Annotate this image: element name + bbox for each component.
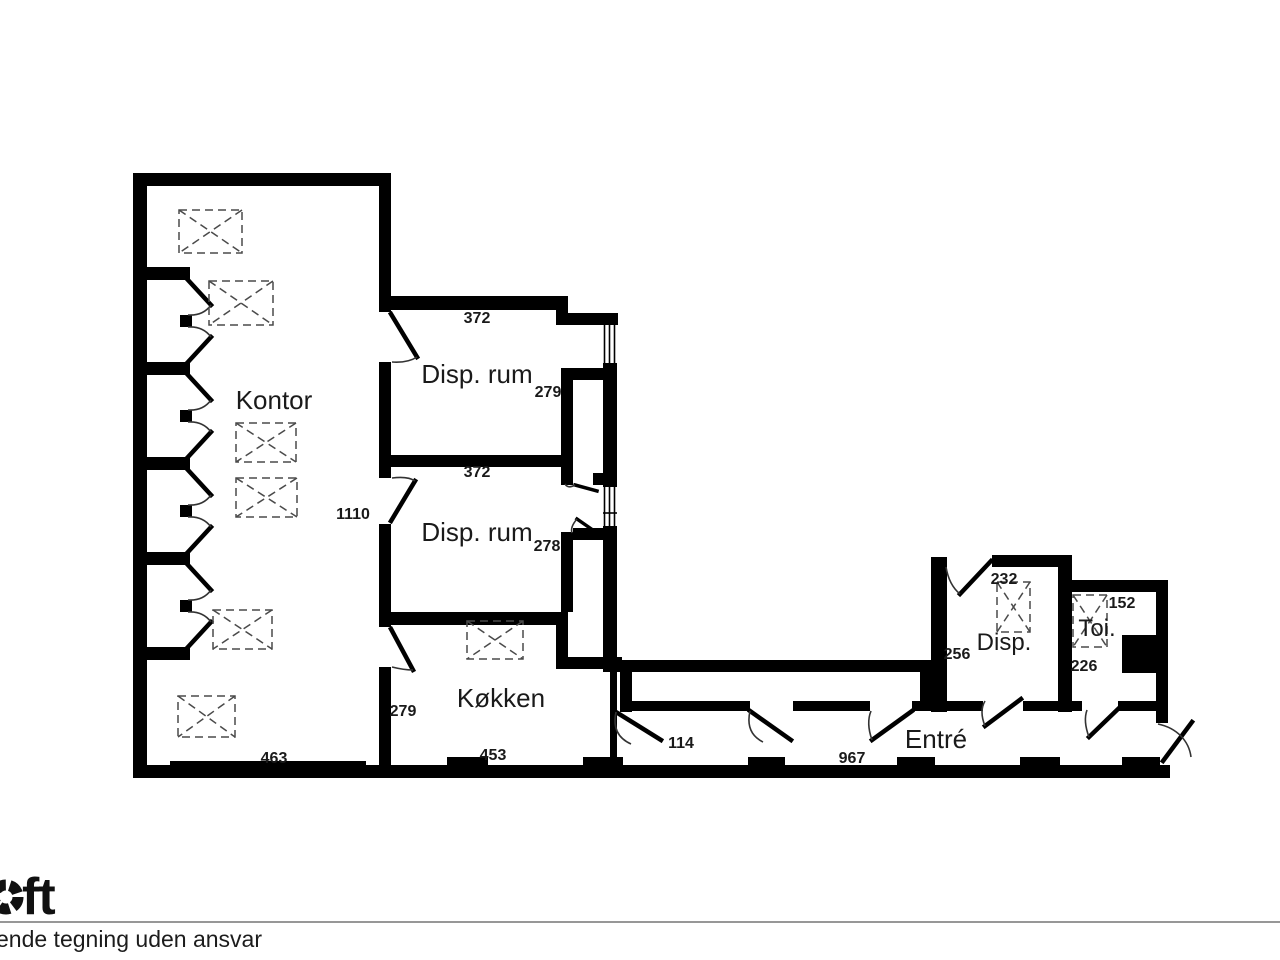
radiator-icon — [179, 210, 242, 253]
threshold-bumps — [170, 757, 1160, 766]
room-label-toi: Toi. — [1078, 615, 1115, 642]
entrance-door-icon — [1158, 722, 1192, 761]
door-icon — [391, 629, 413, 670]
dim-label-114: 114 — [668, 735, 694, 752]
floorplan-page: Kontor Disp. rum Disp. rum Køkken Entré … — [0, 0, 1280, 960]
door-icon — [615, 712, 661, 744]
logo: ft — [0, 868, 55, 926]
room-label-disp: Disp. — [977, 629, 1032, 656]
dim-label-1110: 1110 — [336, 506, 370, 523]
window-icon — [603, 487, 617, 526]
room-label-kokken: Køkken — [457, 683, 545, 713]
dim-label-232: 232 — [991, 571, 1018, 588]
window-icon — [605, 325, 615, 363]
room-label-disp-rum-2: Disp. rum — [421, 517, 532, 547]
shaft-block — [1122, 635, 1158, 673]
dim-label-278: 278 — [534, 538, 561, 555]
floorplan-canvas: Kontor Disp. rum Disp. rum Køkken Entré … — [0, 0, 1280, 960]
door-icon — [749, 711, 791, 742]
dim-label-372-top: 372 — [464, 310, 491, 327]
door-icon — [565, 484, 597, 491]
logo-aperture-icon — [0, 885, 18, 909]
dim-label-967: 967 — [839, 750, 866, 767]
door-icon — [982, 699, 1021, 726]
dim-label-279-kokken: 279 — [390, 703, 417, 720]
radiator-icon — [236, 478, 297, 517]
dim-label-463: 463 — [261, 750, 288, 767]
dim-label-453: 453 — [480, 747, 507, 764]
dim-label-152: 152 — [1109, 595, 1136, 612]
door-icon — [946, 561, 991, 594]
exterior-walls — [133, 173, 1170, 778]
radiator-icon — [997, 582, 1030, 632]
room-label-kontor: Kontor — [236, 385, 313, 415]
dim-label-226: 226 — [1071, 658, 1098, 675]
logo-text: ft — [22, 868, 55, 926]
radiator-icon — [213, 610, 272, 649]
radiator-icon — [467, 621, 523, 659]
dim-label-256: 256 — [944, 646, 971, 663]
radiator-icon — [178, 696, 235, 737]
radiator-icon — [236, 423, 296, 462]
room-label-entre: Entré — [905, 724, 967, 754]
door-icon — [391, 314, 417, 362]
door-icon — [1085, 709, 1118, 737]
door-icon — [391, 477, 415, 521]
radiator-icon — [209, 281, 273, 325]
dim-label-372-mid: 372 — [464, 464, 491, 481]
disclaimer-text: ende tegning uden ansvar — [0, 926, 262, 952]
dim-label-279-disp1: 279 — [535, 384, 562, 401]
room-label-disp-rum-1: Disp. rum — [421, 359, 532, 389]
